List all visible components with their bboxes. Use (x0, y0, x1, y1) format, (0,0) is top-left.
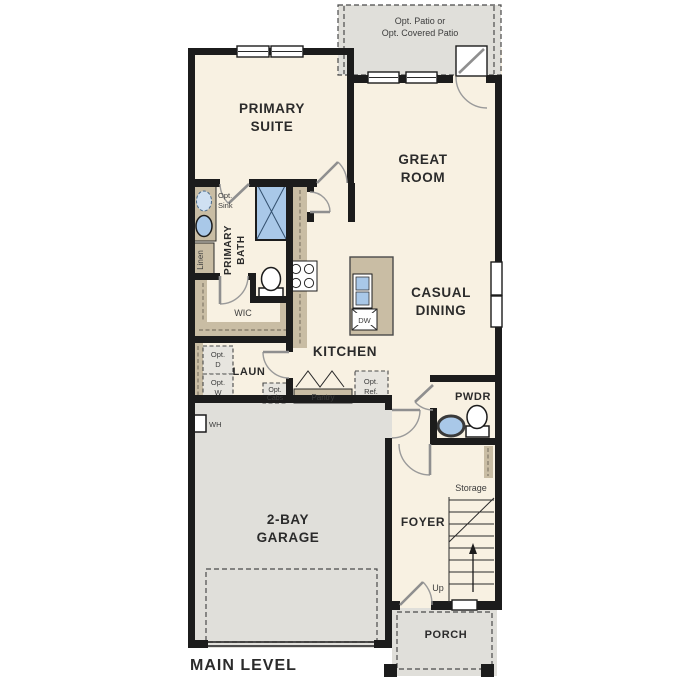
window-dining-2 (491, 296, 502, 327)
up-label: Up (432, 583, 444, 593)
opt-sink-label-2: Sink (218, 201, 233, 210)
wic-label: WIC (234, 308, 252, 318)
laundry-counter (194, 343, 203, 402)
opt-ref-label-1: Opt. (364, 377, 378, 386)
porch-post-left (384, 664, 397, 677)
room-porch (384, 608, 497, 677)
opt-cabs-label-1: Opt. (268, 387, 281, 394)
linen-label: Linen (196, 250, 205, 270)
floor-plan: DW (0, 0, 687, 687)
pantry-label: Pantry (311, 393, 334, 402)
porch-label: PORCH (425, 629, 468, 641)
laun-label: LAUN (233, 366, 266, 378)
wh-label: WH (209, 420, 222, 429)
kitchen-counter-lower (293, 291, 307, 348)
optional-sink-icon (197, 191, 212, 211)
dishwasher-icon: DW (352, 309, 377, 330)
window-dining-1 (491, 262, 502, 295)
patio-label-line1: Opt. Patio or (395, 16, 446, 26)
bath-toilet-icon (259, 268, 283, 300)
opt-d-label-2: D (215, 360, 221, 369)
casual-dining-label-2: DINING (416, 303, 467, 318)
opt-w-label-2: W (214, 388, 222, 397)
garage-label-1: 2-BAY (267, 512, 309, 527)
primary-bath-label-2: BATH (236, 235, 247, 264)
casual-dining-label-1: CASUAL (411, 285, 471, 300)
stair-closet (484, 446, 493, 478)
window-porch (452, 600, 477, 610)
opt-w-label-1: Opt. (211, 378, 225, 387)
kitchen-island: DW (350, 257, 393, 335)
kitchen-label: KITCHEN (313, 344, 377, 359)
great-room-label-1: GREAT (398, 152, 447, 167)
garage-label-2: GARAGE (257, 530, 320, 545)
pwdr-sink-icon (438, 416, 464, 436)
primary-suite-label-2: SUITE (251, 119, 294, 134)
floor-plan-page: DW (0, 0, 687, 687)
opt-ref-label-2: Ref. (364, 387, 378, 396)
dw-label: DW (358, 316, 371, 325)
great-room-label-2: ROOM (401, 170, 445, 185)
pwdr-label: PWDR (455, 391, 491, 403)
opt-d-label-1: Opt. (211, 350, 225, 359)
sink-icon (196, 216, 212, 237)
shower-icon (256, 183, 287, 240)
storage-label: Storage (455, 483, 487, 493)
foyer-label: FOYER (401, 515, 445, 529)
main-level-title: MAIN LEVEL (190, 657, 297, 674)
porch-post-right (481, 664, 494, 677)
opt-sink-label-1: Opt. (218, 191, 232, 200)
primary-suite-label-1: PRIMARY (239, 101, 305, 116)
pwdr-toilet-icon (466, 406, 489, 438)
island-sink-icon (353, 274, 372, 308)
patio-label-line2: Opt. Covered Patio (382, 28, 459, 38)
primary-bath-label-1: PRIMARY (223, 225, 234, 275)
opt-cabs-label-2: Cabs (267, 395, 284, 402)
